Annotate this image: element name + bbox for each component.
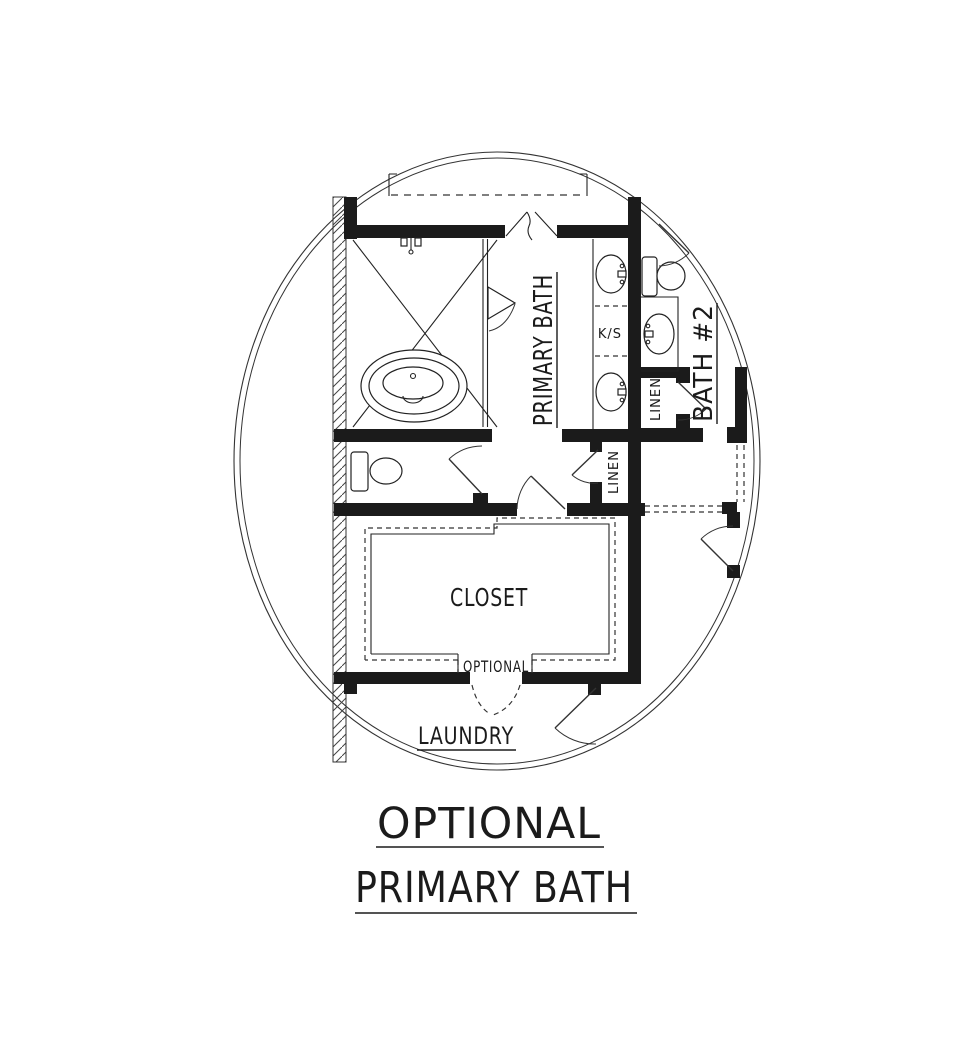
- sink-primary-2: [596, 373, 626, 411]
- primary-toilet: [351, 452, 402, 491]
- door-swing-closet: [517, 476, 565, 509]
- shower-faucet-icon: [401, 238, 421, 254]
- title-line2: PRIMARY BATH: [355, 863, 633, 913]
- label-knee-space: K/S: [598, 327, 622, 342]
- door-swing-linen-lower: [572, 450, 598, 483]
- bath2-toilet: [642, 257, 685, 296]
- title-line1: OPTIONAL: [377, 799, 601, 849]
- door-swing-wc: [449, 446, 482, 494]
- door-swing-right-hall: [701, 526, 733, 571]
- floor-plan-page: PRIMARY BATH BATH #2 LINEN LINEN K/S CLO…: [0, 0, 980, 1060]
- tub: [361, 350, 467, 422]
- shower-tub-area: [353, 238, 515, 427]
- label-laundry: LAUNDRY: [418, 722, 514, 750]
- wall-break-symbol: [506, 212, 557, 240]
- label-closet: CLOSET: [450, 583, 528, 612]
- dashed-opening-top: [389, 174, 587, 196]
- label-linen-upper: LINEN: [649, 377, 664, 421]
- door-swing-optional-dashed: [472, 685, 520, 715]
- label-linen-lower: LINEN: [607, 450, 622, 494]
- optional-dashed-walls: [645, 445, 744, 512]
- floor-plan-drawing: PRIMARY BATH BATH #2 LINEN LINEN K/S CLO…: [0, 0, 980, 1060]
- label-bath2: BATH #2: [689, 304, 719, 422]
- bath2-vanity: [641, 297, 678, 371]
- door-swing-hall-laundry: [555, 688, 596, 744]
- interior-walls: [334, 197, 747, 695]
- glass-shower-door: [488, 287, 515, 331]
- label-primary-bath: PRIMARY BATH: [529, 274, 559, 426]
- label-optional-door: OPTIONAL: [463, 657, 529, 676]
- plan-title: OPTIONAL PRIMARY BATH: [355, 799, 637, 913]
- sink-primary-1: [596, 255, 626, 293]
